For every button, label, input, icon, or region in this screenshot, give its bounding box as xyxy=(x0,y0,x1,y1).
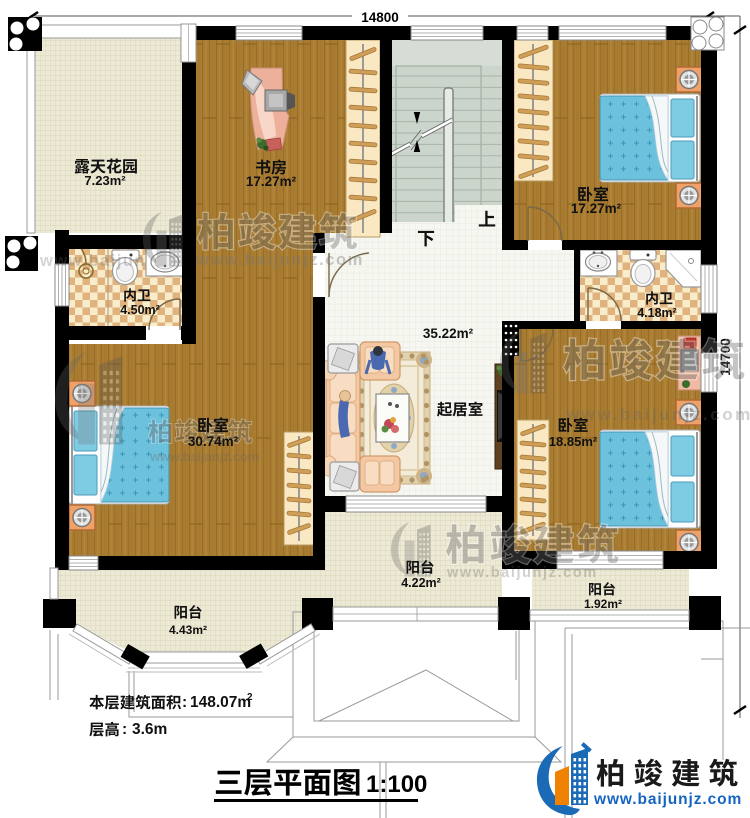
svg-text:17.27m²: 17.27m² xyxy=(246,174,297,189)
svg-text::: : xyxy=(182,694,187,711)
svg-text:www.baijunjz.com: www.baijunjz.com xyxy=(565,405,750,424)
svg-text:30.74m²: 30.74m² xyxy=(188,434,239,449)
svg-text:4.18m²: 4.18m² xyxy=(637,306,677,320)
svg-text:7.23m²: 7.23m² xyxy=(84,173,126,188)
svg-text:18.85m²: 18.85m² xyxy=(549,434,598,449)
svg-text:35.22m²: 35.22m² xyxy=(423,326,474,341)
svg-text:1:100: 1:100 xyxy=(366,771,427,798)
svg-text:4.50m²: 4.50m² xyxy=(120,303,160,317)
svg-text:4.22m²: 4.22m² xyxy=(401,576,441,590)
svg-text:1.92m²: 1.92m² xyxy=(584,597,622,611)
svg-text:www.baijunjz.com: www.baijunjz.com xyxy=(593,791,742,808)
svg-text:www.baijunjz.com: www.baijunjz.com xyxy=(446,565,598,581)
svg-text:148.07m: 148.07m xyxy=(190,694,251,711)
svg-text:17.27m²: 17.27m² xyxy=(571,201,622,216)
svg-text:www.baijun: www.baijun xyxy=(39,252,146,270)
svg-text::: : xyxy=(122,721,127,738)
svg-text:14800: 14800 xyxy=(361,10,399,25)
svg-text:www.baijunjz.com: www.baijunjz.com xyxy=(195,251,364,269)
svg-text:3.6m: 3.6m xyxy=(132,721,167,738)
svg-text:www.baijunjz.com: www.baijunjz.com xyxy=(149,449,259,464)
svg-text:4.43m²: 4.43m² xyxy=(169,623,207,637)
svg-text:2: 2 xyxy=(247,692,253,703)
